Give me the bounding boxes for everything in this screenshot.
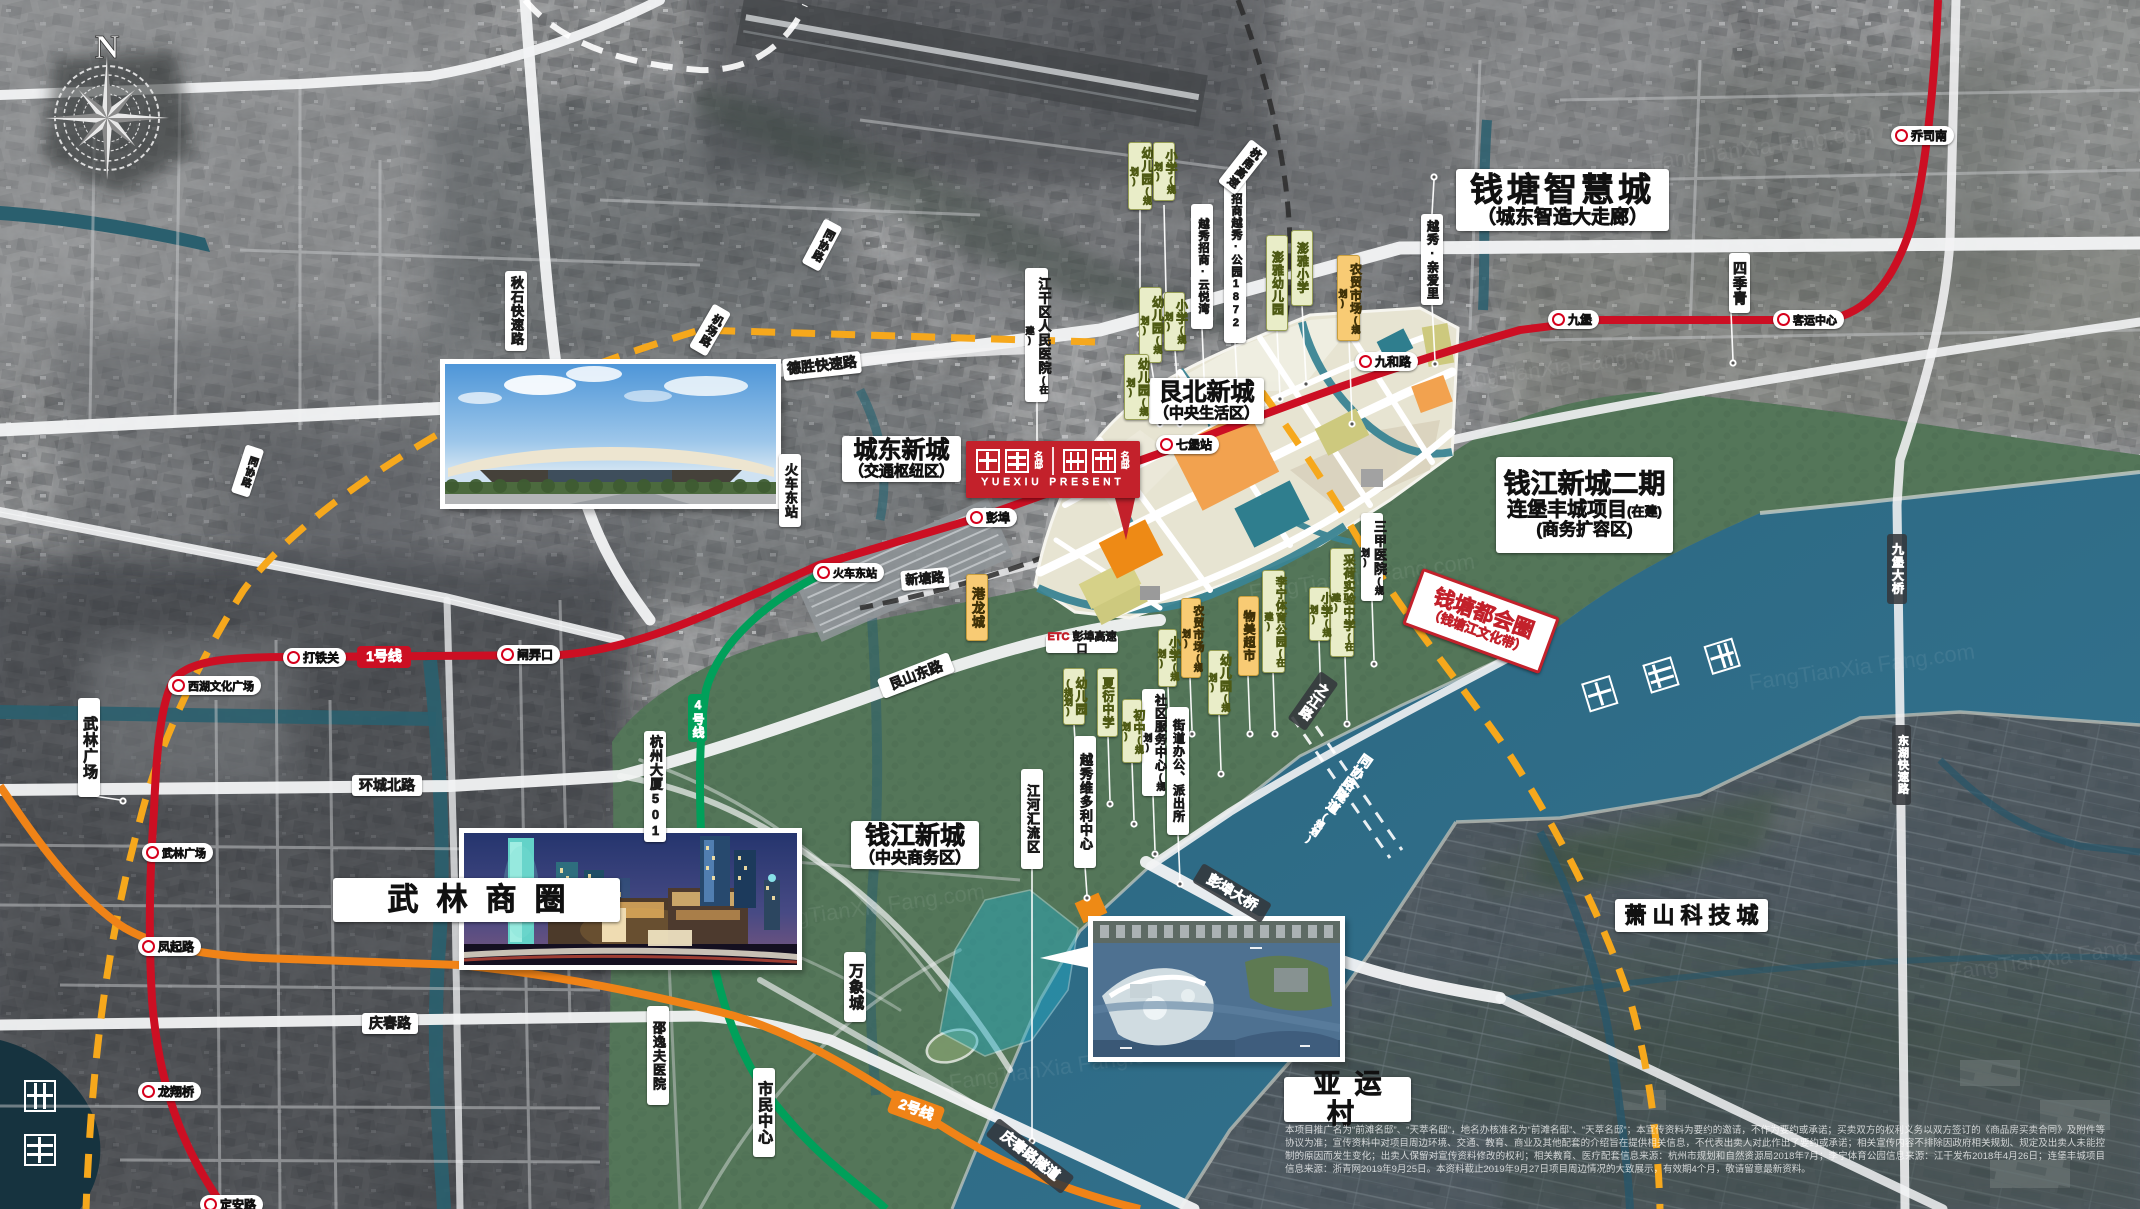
svg-text:N: N: [95, 29, 120, 66]
